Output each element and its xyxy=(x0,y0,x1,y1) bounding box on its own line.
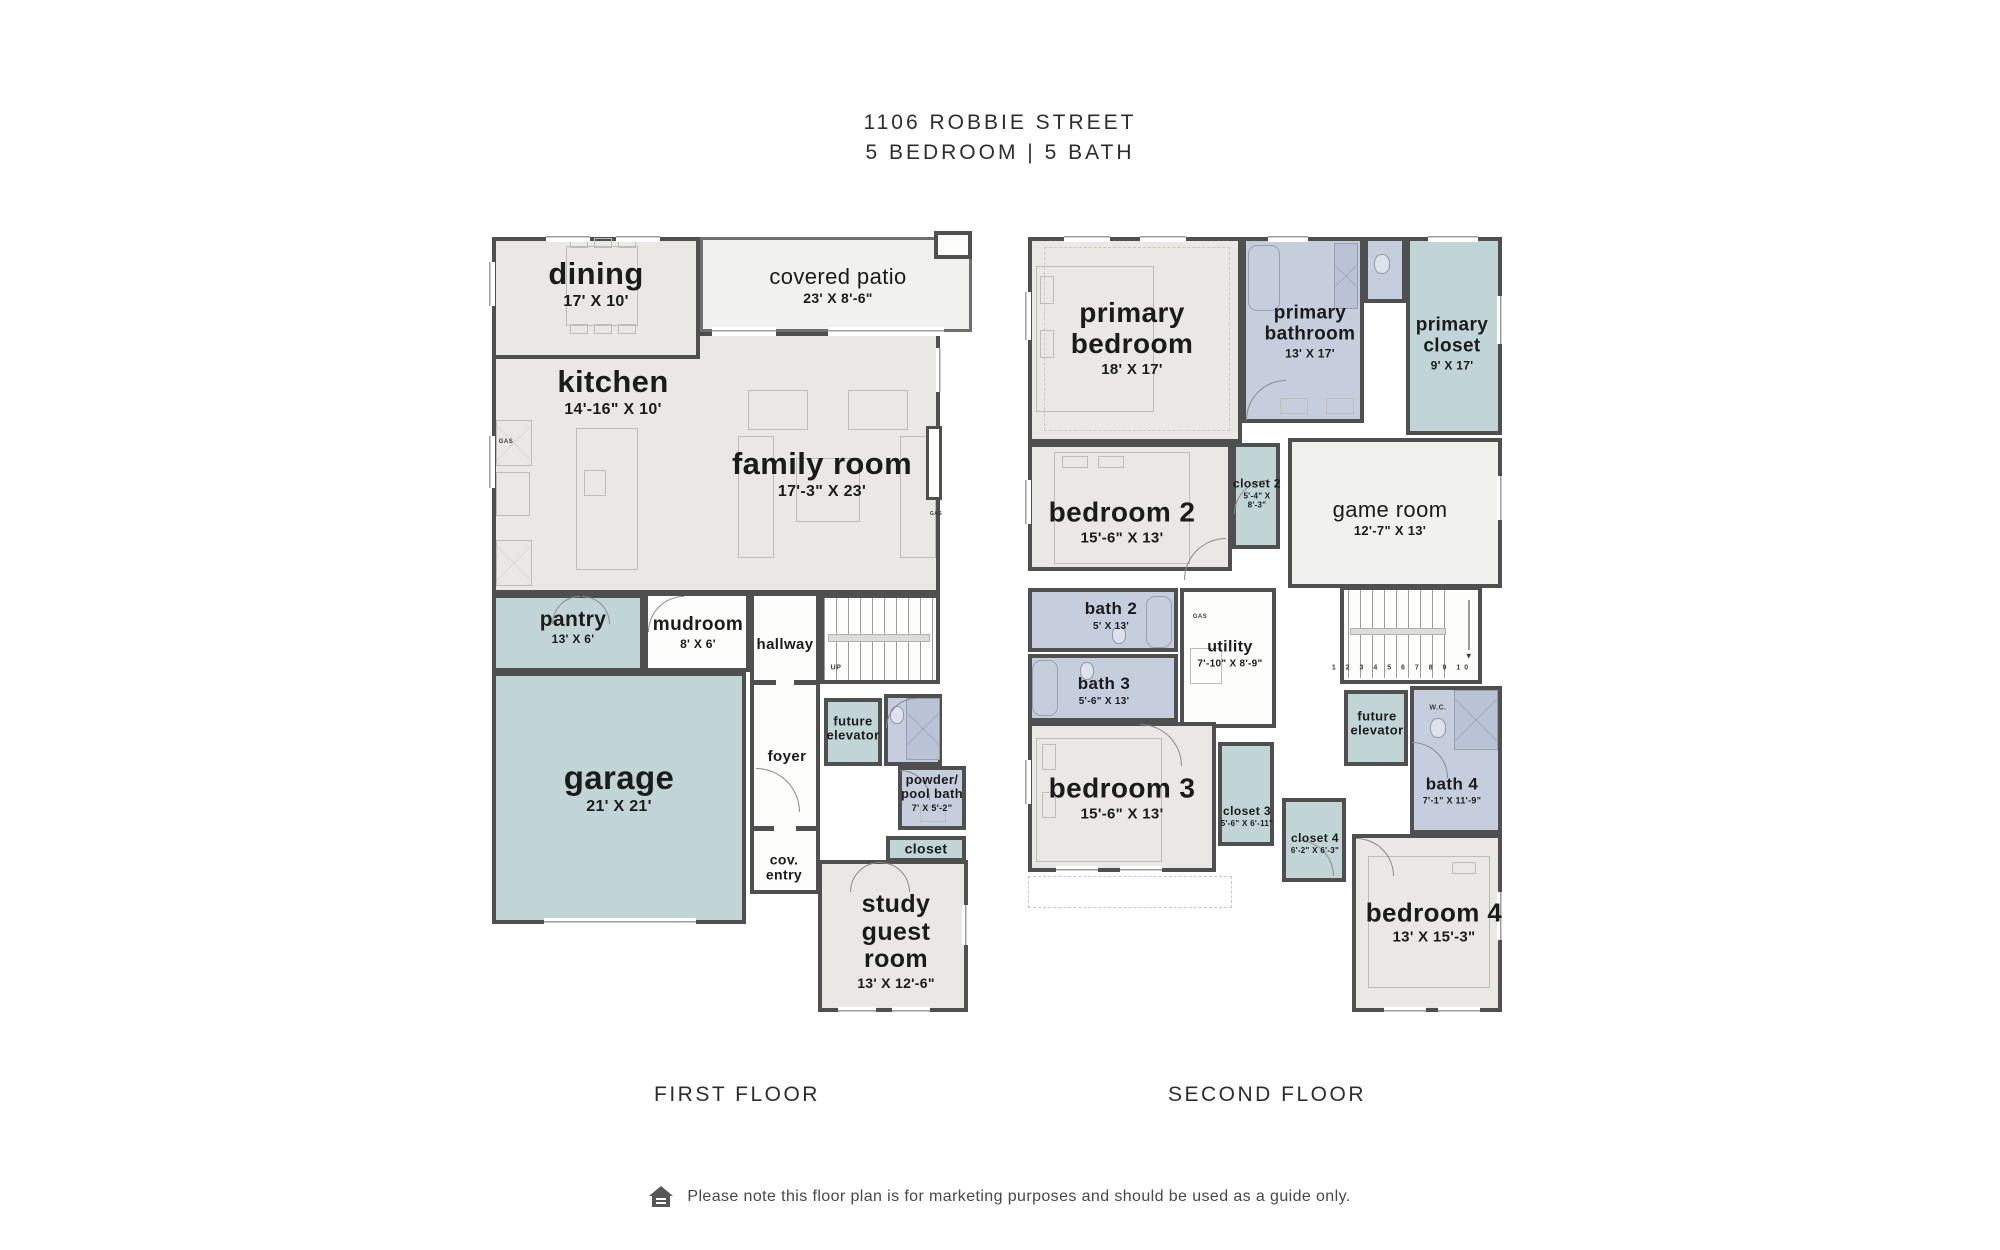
window xyxy=(1056,866,1098,875)
room-name: game room xyxy=(1333,498,1448,522)
room-name: bedroom 3 xyxy=(1049,773,1196,804)
wall-stub xyxy=(796,826,820,831)
room-dims: 18' X 17' xyxy=(1047,362,1217,379)
label-powder-pool-bath: powder/ pool bath 7' X 5'-2" xyxy=(899,773,965,813)
room-dims: 14'-16" X 10' xyxy=(557,401,668,419)
room-name: primary closet xyxy=(1409,316,1495,358)
stair-rail-first xyxy=(828,634,930,642)
primary-shower xyxy=(1334,243,1358,309)
room-name: primary bathroom xyxy=(1255,304,1365,346)
house-roof xyxy=(649,1186,673,1196)
room-dims: 17'-3" X 23' xyxy=(732,483,912,501)
room-name: covered patio xyxy=(769,265,906,289)
room-dims: 7'-1" X 11'-9" xyxy=(1423,796,1482,806)
toilet xyxy=(1374,254,1390,274)
family-chair xyxy=(848,390,908,430)
label-future-elevator-2: future elevator xyxy=(1349,710,1405,739)
label-closet-3: closet 3 5'-6" X 6'-11" xyxy=(1217,805,1277,829)
room-dims: 13' X 12'-6" xyxy=(829,976,963,991)
pillow xyxy=(1098,456,1124,468)
room-name: closet xyxy=(905,841,948,856)
kitchen-sink xyxy=(584,470,606,496)
label-mudroom: mudroom 8' X 6' xyxy=(653,615,743,651)
window xyxy=(1268,233,1308,242)
dining-chair xyxy=(594,238,612,248)
label-foyer: foyer xyxy=(768,749,807,766)
room-closet-3 xyxy=(1218,742,1274,846)
label-dining: dining 17' X 10' xyxy=(548,257,643,311)
floor-plan-page: 1106 ROBBIE STREET 5 BEDROOM | 5 BATH UP… xyxy=(0,0,2000,1250)
wc-label: W.C. xyxy=(1429,705,1446,712)
bath4-shower xyxy=(1454,690,1498,750)
patio-grill xyxy=(934,231,972,259)
window xyxy=(892,1007,930,1016)
label-pantry: pantry 13' X 6' xyxy=(540,608,607,646)
room-dims: 13' X 6' xyxy=(540,633,607,646)
gas-marker-kitchen: GAS xyxy=(499,439,514,445)
fireplace xyxy=(926,426,942,500)
kitchen-fridge xyxy=(496,540,532,586)
label-family-room: family room 17'-3" X 23' xyxy=(732,447,912,501)
room-name: primary bedroom xyxy=(1047,298,1217,360)
window xyxy=(1022,292,1031,340)
room-name: future elevator xyxy=(826,715,880,744)
window xyxy=(828,327,944,336)
room-dims: 7' X 5'-2" xyxy=(899,803,965,813)
room-dims: 15'-6" X 13' xyxy=(1049,806,1196,823)
label-study-guest: study guest room 13' X 12'-6" xyxy=(829,891,963,991)
window xyxy=(1064,233,1110,242)
label-garage: garage 21' X 21' xyxy=(564,760,675,816)
wall-stub xyxy=(750,680,776,685)
sink xyxy=(1326,398,1354,414)
bath3-tub xyxy=(1032,660,1058,716)
room-name: closet 2 xyxy=(1233,478,1281,491)
label-closet-4: closet 4 6'-2" X 6'-3" xyxy=(1285,832,1345,856)
label-hallway: hallway xyxy=(757,637,814,654)
stair-numbers: 1 2 3 4 5 6 7 8 9 10 xyxy=(1332,665,1472,672)
label-primary-bathroom: primary bathroom 13' X 17' xyxy=(1255,304,1365,361)
room-dims: 13' X 17' xyxy=(1255,347,1365,360)
wall-stub xyxy=(750,826,774,831)
dining-chair xyxy=(618,324,636,334)
label-bath-2: bath 2 5' X 13' xyxy=(1085,600,1137,632)
house-body xyxy=(652,1196,670,1207)
room-name: family room xyxy=(732,447,912,481)
room-dims: 12'-7" X 13' xyxy=(1333,524,1448,538)
window xyxy=(1497,296,1506,344)
room-name: closet 4 xyxy=(1285,832,1345,845)
room-name: pantry xyxy=(540,608,607,631)
dining-chair xyxy=(594,324,612,334)
label-bedroom-2: bedroom 2 15'-6" X 13' xyxy=(1049,497,1196,546)
primary-tub xyxy=(1248,245,1280,311)
label-kitchen: kitchen 14'-16" X 10' xyxy=(557,365,668,419)
label-utility: utility 7'-10" X 8'-9" xyxy=(1197,639,1262,670)
room-name: dining xyxy=(548,257,643,291)
room-name: future elevator xyxy=(1349,710,1405,739)
label-closet-2: closet 2 5'-4" X 8'-3" xyxy=(1233,478,1281,511)
window xyxy=(1140,233,1186,242)
room-dims: 13' X 15'-3" xyxy=(1366,929,1503,946)
family-chair xyxy=(748,390,808,430)
room-name: hallway xyxy=(757,637,814,654)
room-dims: 15'-6" X 13' xyxy=(1049,530,1196,547)
room-dims: 23' X 8'-6" xyxy=(769,291,906,306)
window xyxy=(712,327,776,336)
gas-marker-utility: GAS xyxy=(1193,614,1208,620)
roof-outline-dashed xyxy=(1028,876,1232,908)
window xyxy=(486,436,495,488)
window xyxy=(1428,233,1478,242)
address-line: 1106 ROBBIE STREET xyxy=(0,108,2000,138)
room-dims: 9' X 17' xyxy=(1409,359,1495,372)
pillow xyxy=(1452,862,1476,874)
label-game-room: game room 12'-7" X 13' xyxy=(1333,498,1448,538)
label-bedroom-4: bedroom 4 13' X 15'-3" xyxy=(1366,898,1503,945)
window xyxy=(1022,760,1031,804)
page-title: 1106 ROBBIE STREET 5 BEDROOM | 5 BATH xyxy=(0,108,2000,169)
window xyxy=(1497,476,1506,520)
stair-down-arrow: ▼ xyxy=(1465,652,1473,661)
room-name: powder/ pool bath xyxy=(899,773,965,802)
pillow xyxy=(1042,744,1056,770)
room-name: cov. entry xyxy=(760,853,808,884)
room-dims: 21' X 21' xyxy=(564,798,675,816)
room-name: utility xyxy=(1197,639,1262,657)
footer-note: Please note this floor plan is for marke… xyxy=(687,1188,1350,1206)
label-primary-bedroom: primary bedroom 18' X 17' xyxy=(1047,298,1217,378)
equal-housing-icon xyxy=(649,1186,673,1208)
pillow xyxy=(1062,456,1088,468)
room-dims: 6'-2" X 6'-3" xyxy=(1285,847,1345,856)
room-name: bath 4 xyxy=(1423,776,1482,795)
room-name: bedroom 2 xyxy=(1049,497,1196,528)
stair-up-label: UP xyxy=(831,665,842,672)
footer: Please note this floor plan is for marke… xyxy=(0,1186,2000,1208)
room-name: study guest room xyxy=(829,891,963,974)
dining-chair xyxy=(570,324,588,334)
room-name: bath 2 xyxy=(1085,600,1137,619)
window xyxy=(962,905,971,945)
label-closet-first: closet xyxy=(905,841,948,856)
room-dims: 17' X 10' xyxy=(548,293,643,311)
room-dims: 5' X 13' xyxy=(1085,621,1137,632)
room-name: closet 3 xyxy=(1217,805,1277,818)
label-bedroom-3: bedroom 3 15'-6" X 13' xyxy=(1049,773,1196,822)
room-name: mudroom xyxy=(653,615,743,636)
second-floor-caption: SECOND FLOOR xyxy=(1168,1083,1366,1107)
window xyxy=(936,348,945,392)
window xyxy=(1438,1007,1480,1016)
room-name: bedroom 4 xyxy=(1366,898,1503,927)
room-dims: 5'-4" X 8'-3" xyxy=(1233,493,1281,511)
stair-path-line xyxy=(1468,600,1470,650)
window xyxy=(616,233,660,242)
garage-door xyxy=(544,918,696,927)
label-cov-entry: cov. entry xyxy=(760,853,808,884)
window xyxy=(838,1007,876,1016)
kitchen-counter xyxy=(496,472,530,516)
room-name: kitchen xyxy=(557,365,668,399)
window xyxy=(1022,480,1031,524)
label-covered-patio: covered patio 23' X 8'-6" xyxy=(769,265,906,307)
label-primary-closet: primary closet 9' X 17' xyxy=(1409,316,1495,373)
room-name: bath 3 xyxy=(1078,675,1130,694)
first-floor-caption: FIRST FLOOR xyxy=(654,1083,820,1107)
wall-stub xyxy=(794,680,820,685)
bath2-tub xyxy=(1146,596,1172,648)
label-future-elevator-1: future elevator xyxy=(826,715,880,744)
room-name: foyer xyxy=(768,749,807,766)
gas-marker-fireplace: GAS xyxy=(930,511,942,517)
window xyxy=(1384,1007,1426,1016)
stair-rail-second xyxy=(1350,628,1446,635)
kitchen-island xyxy=(576,428,638,570)
bed-bath-line: 5 BEDROOM | 5 BATH xyxy=(0,138,2000,168)
room-dims: 8' X 6' xyxy=(653,638,743,651)
room-dims: 5'-6" X 13' xyxy=(1078,696,1130,707)
window xyxy=(1120,866,1162,875)
room-dims: 7'-10" X 8'-9" xyxy=(1197,658,1262,669)
window xyxy=(486,262,495,306)
label-bath-3: bath 3 5'-6" X 13' xyxy=(1078,675,1130,707)
room-dims: 5'-6" X 6'-11" xyxy=(1217,820,1277,829)
label-bath-4: bath 4 7'-1" X 11'-9" xyxy=(1423,776,1482,807)
toilet xyxy=(1430,718,1446,738)
window xyxy=(546,233,590,242)
room-name: garage xyxy=(564,760,675,796)
